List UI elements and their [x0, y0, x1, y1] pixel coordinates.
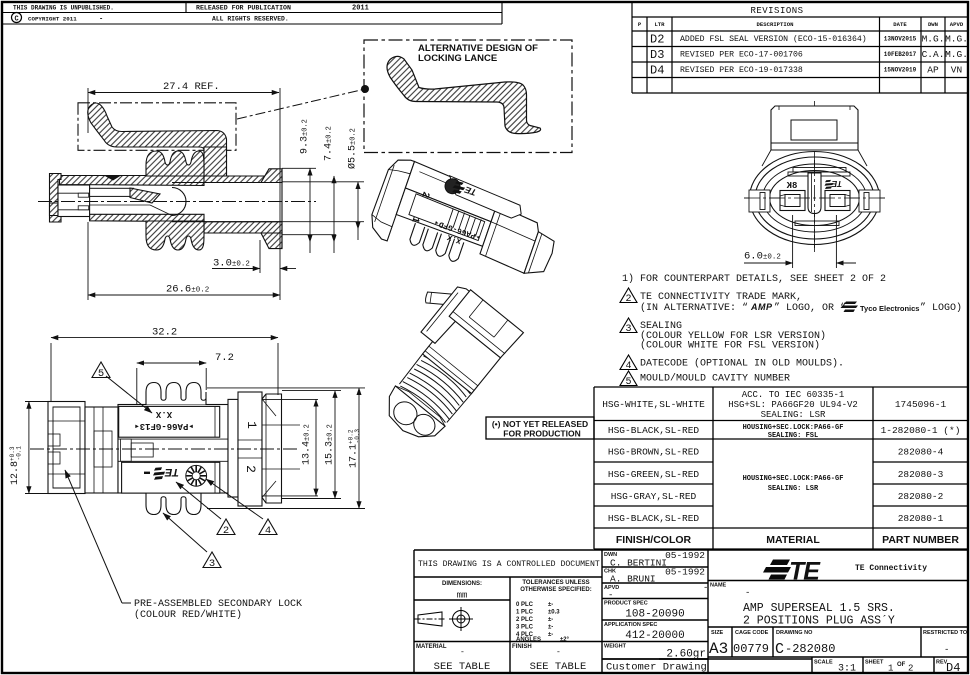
svg-text:CAGE CODE: CAGE CODE [735, 630, 769, 636]
svg-text:DRAWING NO: DRAWING NO [776, 630, 813, 636]
svg-text:REVISIONS: REVISIONS [750, 6, 803, 16]
svg-text:DIMENSIONS:: DIMENSIONS: [442, 581, 482, 587]
svg-text:ADDED FSL SEAL VERSION (ECO-15: ADDED FSL SEAL VERSION (ECO-15-016364) [680, 34, 867, 44]
svg-text:-: - [703, 583, 708, 593]
svg-text:15.3±0.2: 15.3±0.2 [325, 424, 336, 465]
svg-text:A3: A3 [709, 640, 728, 658]
svg-text:2011: 2011 [352, 5, 369, 13]
svg-text:FOR PRODUCTION: FOR PRODUCTION [503, 429, 580, 439]
svg-text:AP: AP [927, 65, 939, 76]
svg-text:RESTRICTED TO: RESTRICTED TO [923, 630, 968, 636]
svg-text:3 PLC: 3 PLC [516, 625, 534, 631]
svg-text:REVISED PER ECO-19-017338: REVISED PER ECO-19-017338 [680, 66, 803, 75]
svg-text:D3: D3 [650, 48, 664, 62]
svg-text:Customer Drawing: Customer Drawing [606, 662, 707, 674]
svg-text:REVISED PER ECO-17-001706: REVISED PER ECO-17-001706 [680, 51, 803, 60]
svg-text:1: 1 [888, 664, 893, 674]
svg-text:2 POSITIONS PLUG ASS´Y: 2 POSITIONS PLUG ASS´Y [743, 615, 895, 628]
svg-text:COPYRIGHT 2011: COPYRIGHT 2011 [28, 16, 77, 23]
svg-text:HSG+SL: PA66GF20 UL94-V2: HSG+SL: PA66GF20 UL94-V2 [728, 400, 858, 410]
svg-text:MATERIAL: MATERIAL [416, 644, 447, 650]
svg-text:HSG-WHITE,SL-WHITE: HSG-WHITE,SL-WHITE [602, 399, 705, 410]
svg-text:AMP SUPERSEAL 1.5 SRS.: AMP SUPERSEAL 1.5 SRS. [743, 602, 895, 615]
svg-text:SIZE: SIZE [711, 630, 724, 636]
svg-text:TE Connectivity: TE Connectivity [855, 564, 927, 573]
svg-text:ACC. TO IEC 60335-1: ACC. TO IEC 60335-1 [742, 390, 845, 400]
svg-text:3:1: 3:1 [838, 664, 856, 675]
svg-text:(COLOUR WHITE FOR FSL VERSION): (COLOUR WHITE FOR FSL VERSION) [640, 340, 820, 352]
svg-text:282080-1: 282080-1 [898, 513, 944, 524]
svg-text:VN: VN [951, 65, 962, 76]
svg-text:C. BERTINI: C. BERTINI [610, 558, 667, 569]
svg-text:-: - [944, 645, 949, 655]
svg-text:15NOV2019: 15NOV2019 [884, 67, 917, 74]
svg-text:-: - [460, 648, 465, 657]
svg-text:4: 4 [265, 525, 271, 537]
svg-text:HSG-GREEN,SL-RED: HSG-GREEN,SL-RED [608, 469, 700, 480]
svg-text:M.G.: M.G. [922, 34, 945, 45]
svg-text:HOUSING+SEC.LOCK:PA66-GF: HOUSING+SEC.LOCK:PA66-GF [743, 424, 844, 432]
svg-text:8K: 8K [786, 181, 797, 191]
svg-text:1) FOR COUNTERPART DETAILS, SE: 1) FOR COUNTERPART DETAILS, SEE SHEET 2 … [622, 273, 886, 285]
svg-text:±0.3: ±0.3 [548, 610, 560, 616]
svg-text:C: C [15, 15, 19, 23]
svg-text:(IN ALTERNATIVE: “: (IN ALTERNATIVE: “ [640, 302, 748, 314]
svg-text:±-: ±- [548, 625, 553, 631]
svg-text:D2: D2 [650, 33, 664, 47]
svg-text:-: - [608, 591, 613, 601]
svg-text:-: - [745, 588, 750, 598]
svg-text:SCALE: SCALE [814, 660, 833, 666]
svg-text:(•) NOT YET RELEASED: (•) NOT YET RELEASED [492, 419, 588, 429]
svg-text:THIS DRAWING IS UNPUBLISHED.: THIS DRAWING IS UNPUBLISHED. [13, 5, 114, 12]
svg-text:1: 1 [244, 421, 259, 429]
svg-text:2: 2 [243, 465, 258, 473]
svg-text:412-20000: 412-20000 [625, 630, 684, 642]
svg-text:NAME: NAME [710, 583, 727, 589]
svg-text:Tyco Electronics: Tyco Electronics [860, 304, 919, 313]
svg-text:00779: 00779 [733, 642, 769, 656]
svg-text:-: - [99, 16, 103, 24]
svg-text:HSG-BLACK,SL-RED: HSG-BLACK,SL-RED [608, 513, 700, 524]
svg-text:DATECODE (OPTIONAL IN OLD MOUL: DATECODE (OPTIONAL IN OLD MOULDS). [640, 358, 844, 370]
svg-text:ALL RIGHTS RESERVED.: ALL RIGHTS RESERVED. [212, 16, 289, 23]
svg-text:SHEET: SHEET [865, 660, 884, 666]
svg-text:05-1992: 05-1992 [665, 567, 705, 578]
svg-text:7.4±0.2: 7.4±0.2 [324, 126, 335, 161]
svg-text:2: 2 [908, 664, 913, 674]
svg-text:1 PLC: 1 PLC [516, 610, 534, 616]
svg-text:APVD: APVD [950, 21, 964, 28]
svg-text:13.4±0.2: 13.4±0.2 [302, 424, 313, 465]
svg-text:27.4 REF.: 27.4 REF. [163, 81, 220, 93]
svg-text:OF: OF [897, 662, 906, 668]
svg-text:2: 2 [223, 525, 229, 537]
svg-text:282080-3: 282080-3 [898, 469, 944, 480]
svg-text:SEALING: FSL: SEALING: FSL [768, 432, 818, 440]
svg-text:2.60gr: 2.60gr [666, 649, 706, 661]
svg-text:5: 5 [98, 368, 104, 380]
svg-text:DESCRIPTION: DESCRIPTION [757, 21, 794, 28]
svg-text:C: C [775, 641, 784, 658]
svg-text:HOUSING+SEC.LOCK:PA66-GF: HOUSING+SEC.LOCK:PA66-GF [743, 475, 844, 483]
svg-text:TOLERANCES UNLESS: TOLERANCES UNLESS [522, 580, 589, 586]
svg-text:PART NUMBER: PART NUMBER [882, 534, 959, 546]
svg-text:AMP: AMP [750, 302, 773, 312]
svg-text:M.G.: M.G. [945, 49, 968, 60]
svg-text:TE: TE [789, 558, 821, 586]
svg-text:282080-4: 282080-4 [898, 447, 944, 458]
svg-text:±2°: ±2° [560, 637, 570, 643]
svg-text:WEIGHT: WEIGHT [604, 644, 627, 650]
svg-text:10FEB2017: 10FEB2017 [884, 51, 917, 58]
svg-text:DATE: DATE [893, 21, 907, 28]
svg-text:SEE TABLE: SEE TABLE [530, 661, 587, 673]
svg-text:X.X: X.X [155, 409, 172, 419]
svg-text:0 PLC: 0 PLC [516, 602, 534, 608]
svg-text:▸PA66-GF13◂: ▸PA66-GF13◂ [134, 421, 193, 431]
svg-text:±-: ±- [548, 632, 553, 638]
svg-text:SEALING: LSR: SEALING: LSR [761, 410, 826, 420]
svg-text:MATERIAL: MATERIAL [766, 534, 820, 546]
svg-text:THIS DRAWING IS A CONTROLLED D: THIS DRAWING IS A CONTROLLED DOCUMENT. [418, 560, 605, 569]
svg-text:282080-2: 282080-2 [898, 491, 944, 502]
svg-text:32.2: 32.2 [152, 327, 177, 339]
svg-text:TE: TE [164, 466, 179, 478]
svg-text:SEALING: LSR: SEALING: LSR [768, 485, 819, 493]
svg-text:3: 3 [625, 324, 631, 335]
svg-text:(COLOUR RED/WHITE): (COLOUR RED/WHITE) [134, 609, 242, 621]
svg-text:D4: D4 [650, 64, 664, 78]
svg-text:-: - [556, 648, 561, 657]
svg-text:mm: mm [457, 591, 468, 601]
svg-text:2: 2 [625, 294, 631, 305]
svg-text:C.A.: C.A. [922, 49, 945, 60]
svg-text:ANGLES: ANGLES [516, 637, 541, 643]
svg-text:3: 3 [209, 558, 215, 570]
svg-text:1745096-1: 1745096-1 [895, 399, 947, 410]
svg-text:FINISH/COLOR: FINISH/COLOR [616, 534, 692, 546]
svg-text:” LOGO): ” LOGO) [920, 302, 962, 314]
svg-text:7.2: 7.2 [215, 352, 234, 364]
svg-text:9.3±0.2: 9.3±0.2 [300, 119, 311, 154]
svg-text:HSG-BROWN,SL-RED: HSG-BROWN,SL-RED [608, 447, 700, 458]
svg-text:A. BRUNI: A. BRUNI [610, 574, 656, 585]
svg-text:-282080: -282080 [785, 642, 835, 656]
svg-text:17.1+0.2-0.3: 17.1+0.2-0.3 [348, 429, 362, 468]
svg-text:APPLICATION SPEC: APPLICATION SPEC [604, 622, 657, 628]
svg-text:05-1992: 05-1992 [665, 550, 705, 561]
svg-text:FINISH: FINISH [512, 644, 532, 650]
svg-text:SEE TABLE: SEE TABLE [434, 661, 491, 673]
svg-text:12.8+0.3-0.1: 12.8+0.3-0.1 [9, 446, 23, 485]
svg-text:108-20090: 108-20090 [625, 609, 684, 621]
svg-text:LTR: LTR [654, 21, 665, 28]
svg-text:PRE-ASSEMBLED SECONDARY LOCK: PRE-ASSEMBLED SECONDARY LOCK [134, 599, 302, 610]
svg-text:D4: D4 [946, 661, 960, 675]
svg-text:PRODUCT SPEC: PRODUCT SPEC [604, 601, 648, 607]
svg-text:±-: ±- [548, 602, 553, 608]
svg-text:RELEASED FOR PUBLICATION: RELEASED FOR PUBLICATION [196, 5, 291, 12]
svg-text:±-: ±- [548, 617, 553, 623]
svg-text:” LOGO, OR “: ” LOGO, OR “ [774, 302, 846, 314]
svg-text:2 PLC: 2 PLC [516, 617, 534, 623]
svg-text:TE CONNECTIVITY TRADE MARK,: TE CONNECTIVITY TRADE MARK, [640, 292, 802, 303]
svg-text:MOULD/MOULD CAVITY NUMBER: MOULD/MOULD CAVITY NUMBER [640, 373, 790, 385]
svg-text:13NOV2015: 13NOV2015 [884, 36, 917, 43]
svg-text:DWN: DWN [928, 21, 938, 28]
svg-text:HSG-BLACK,SL-RED: HSG-BLACK,SL-RED [608, 425, 700, 436]
svg-text:1-282080-1 (*): 1-282080-1 (*) [881, 425, 961, 436]
svg-text:M.G.: M.G. [945, 34, 968, 45]
svg-text:LOCKING LANCE: LOCKING LANCE [418, 53, 497, 64]
svg-text:HSG-GRAY,SL-RED: HSG-GRAY,SL-RED [611, 491, 697, 502]
svg-text:OTHERWISE SPECIFIED:: OTHERWISE SPECIFIED: [520, 587, 592, 593]
